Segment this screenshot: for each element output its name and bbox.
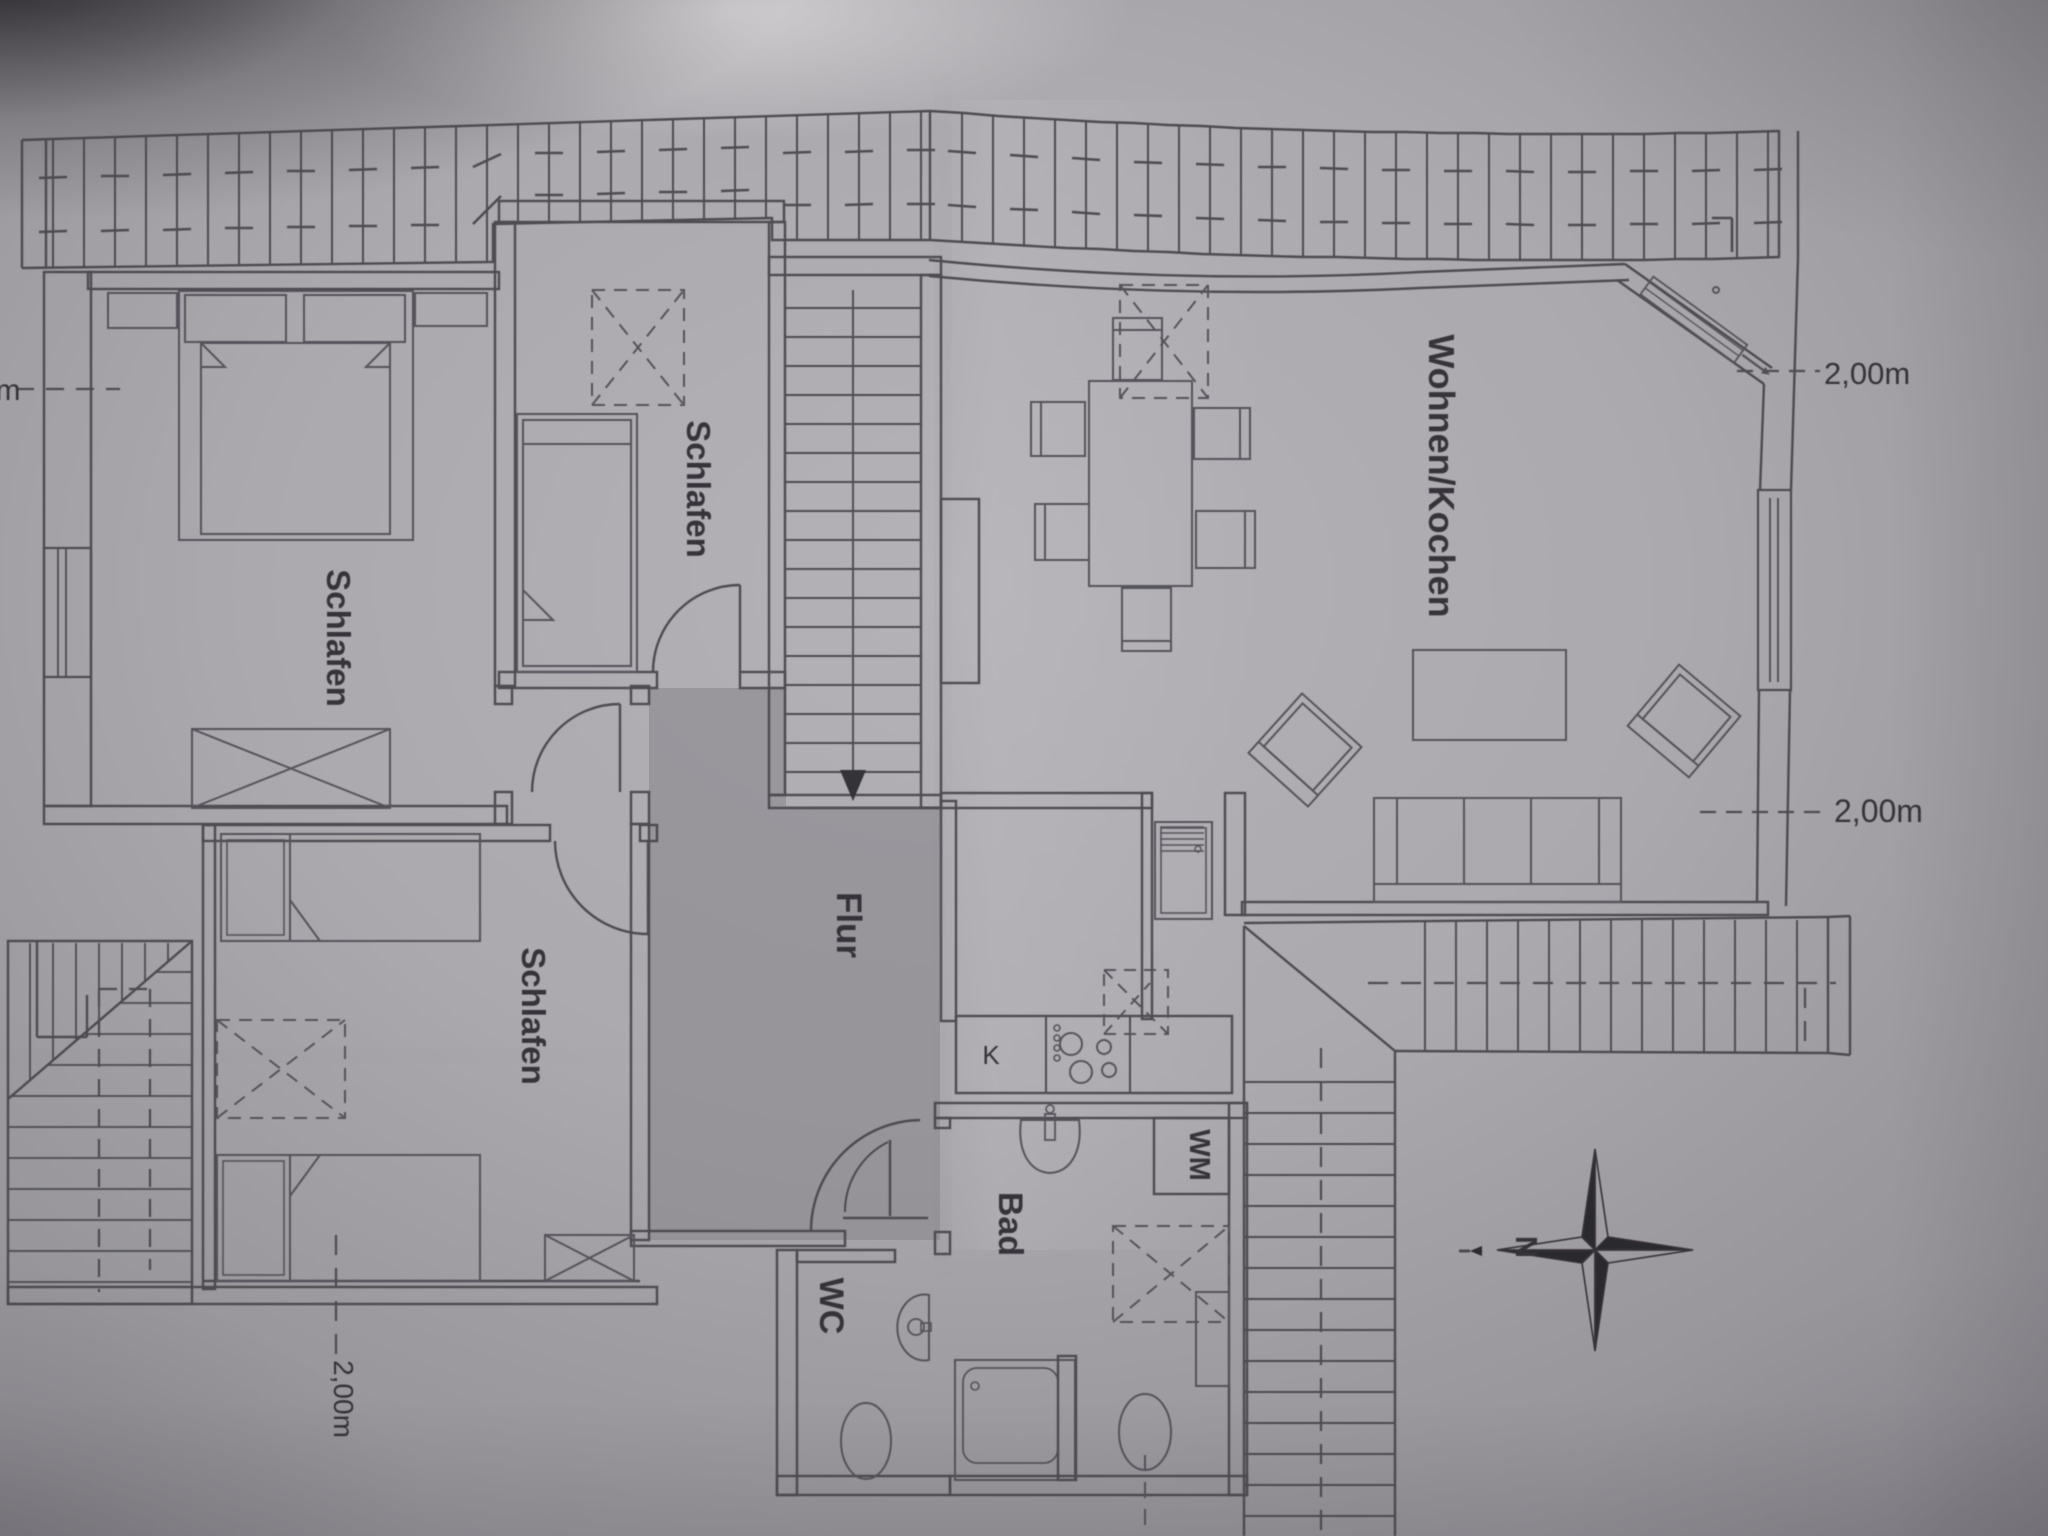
svg-text:Schlafen: Schlafen bbox=[320, 569, 357, 707]
svg-text:K: K bbox=[982, 1040, 1000, 1070]
svg-text:N: N bbox=[1509, 1236, 1544, 1258]
svg-text:m: m bbox=[0, 374, 21, 407]
svg-text:Schlafen: Schlafen bbox=[515, 947, 552, 1085]
svg-text:Flur: Flur bbox=[829, 892, 868, 958]
svg-text:WC: WC bbox=[812, 1278, 850, 1335]
svg-text:Bad: Bad bbox=[991, 1192, 1029, 1256]
svg-text:2,00m: 2,00m bbox=[1834, 793, 1923, 829]
svg-text:2,00m: 2,00m bbox=[328, 1360, 359, 1438]
svg-text:Wohnen/Kochen: Wohnen/Kochen bbox=[1421, 334, 1462, 617]
svg-text:Schlafen: Schlafen bbox=[680, 420, 717, 558]
svg-text:WM: WM bbox=[1183, 1129, 1215, 1181]
svg-text:2,00m: 2,00m bbox=[1824, 356, 1910, 391]
